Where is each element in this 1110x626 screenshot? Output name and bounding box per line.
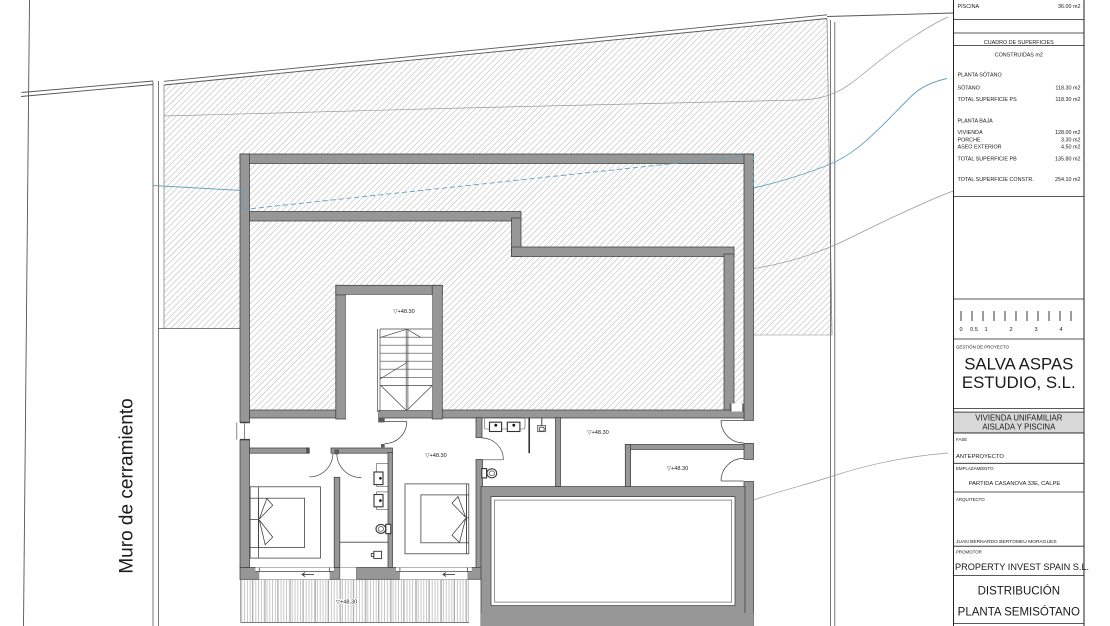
svg-text:PORCHE: PORCHE xyxy=(958,137,981,143)
svg-text:GESTIÓN DE PROYECTO: GESTIÓN DE PROYECTO xyxy=(956,345,1009,350)
svg-text:SÓTANO: SÓTANO xyxy=(958,84,980,91)
svg-text:254.10 m2: 254.10 m2 xyxy=(1055,177,1080,183)
svg-text:2: 2 xyxy=(1009,327,1012,333)
svg-text:ANTEPROYECTO: ANTEPROYECTO xyxy=(956,454,1004,460)
svg-text:TOTAL SUPERFICIE PS: TOTAL SUPERFICIE PS xyxy=(958,97,1018,103)
svg-text:JUAN BERNARDO BERTOMEU MORAGUE: JUAN BERNARDO BERTOMEU MORAGUES xyxy=(956,539,1057,545)
svg-text:4: 4 xyxy=(1059,327,1062,333)
svg-text:36.00 m2: 36.00 m2 xyxy=(1058,4,1080,10)
svg-text:135.80 m2: 135.80 m2 xyxy=(1055,157,1080,163)
svg-text:FASE: FASE xyxy=(956,437,967,442)
svg-text:DISTRIBUCIÓN: DISTRIBUCIÓN xyxy=(978,585,1060,598)
svg-text:3.30 m2: 3.30 m2 xyxy=(1061,137,1080,143)
svg-text:PARTIDA CASANOVA 33E, CALPE: PARTIDA CASANOVA 33E, CALPE xyxy=(969,481,1061,487)
svg-text:▽+48.30: ▽+48.30 xyxy=(587,430,609,436)
svg-text:VIVIENDA: VIVIENDA xyxy=(958,130,984,136)
svg-text:128.00 m2: 128.00 m2 xyxy=(1055,130,1080,136)
svg-text:▽+48.30: ▽+48.30 xyxy=(425,453,447,459)
svg-text:4.50 m2: 4.50 m2 xyxy=(1061,145,1080,151)
svg-text:118.30 m2: 118.30 m2 xyxy=(1055,85,1080,91)
svg-text:SALVA ASPAS: SALVA ASPAS xyxy=(964,355,1073,374)
svg-text:▽+48.30: ▽+48.30 xyxy=(667,466,689,472)
svg-text:ARQUITECTO: ARQUITECTO xyxy=(956,497,985,502)
svg-text:AISLADA Y PISCINA: AISLADA Y PISCINA xyxy=(982,423,1056,432)
svg-text:1: 1 xyxy=(984,327,987,333)
svg-text:0: 0 xyxy=(959,327,962,333)
svg-text:ESTUDIO, S.L.: ESTUDIO, S.L. xyxy=(962,373,1076,392)
svg-text:EMPLAZAMIENTO: EMPLAZAMIENTO xyxy=(956,466,994,471)
svg-text:CONSTRUIDAS m2: CONSTRUIDAS m2 xyxy=(995,53,1043,59)
svg-text:PROPERTY INVEST SPAIN S.L.: PROPERTY INVEST SPAIN S.L. xyxy=(955,562,1089,572)
svg-text:PISCINA: PISCINA xyxy=(958,4,980,10)
svg-text:TOTAL SUPERFICIE CONSTR.: TOTAL SUPERFICIE CONSTR. xyxy=(958,177,1034,183)
svg-text:PLANTA BAJA: PLANTA BAJA xyxy=(958,119,994,125)
svg-text:Muro de cerramiento: Muro de cerramiento xyxy=(117,398,138,573)
svg-text:CUADRO DE SUPERFICIES: CUADRO DE SUPERFICIES xyxy=(984,40,1054,46)
svg-text:▽+48.30: ▽+48.30 xyxy=(393,309,415,315)
svg-text:PLANTA SÓTANO: PLANTA SÓTANO xyxy=(958,72,1002,79)
svg-text:TOTAL SUPERFICIE PB: TOTAL SUPERFICIE PB xyxy=(958,157,1018,163)
svg-text:PROMOTOR: PROMOTOR xyxy=(956,550,982,555)
svg-text:PLANTA SEMISÓTANO: PLANTA SEMISÓTANO xyxy=(958,606,1080,619)
svg-text:▽+48.30: ▽+48.30 xyxy=(336,600,358,606)
svg-text:VIVIENDA UNIFAMILIAR: VIVIENDA UNIFAMILIAR xyxy=(975,414,1062,423)
svg-text:ASEO EXTERIOR: ASEO EXTERIOR xyxy=(958,145,1002,151)
svg-text:0.5: 0.5 xyxy=(970,327,978,333)
svg-text:3: 3 xyxy=(1034,327,1037,333)
svg-text:118.30 m2: 118.30 m2 xyxy=(1055,97,1080,103)
